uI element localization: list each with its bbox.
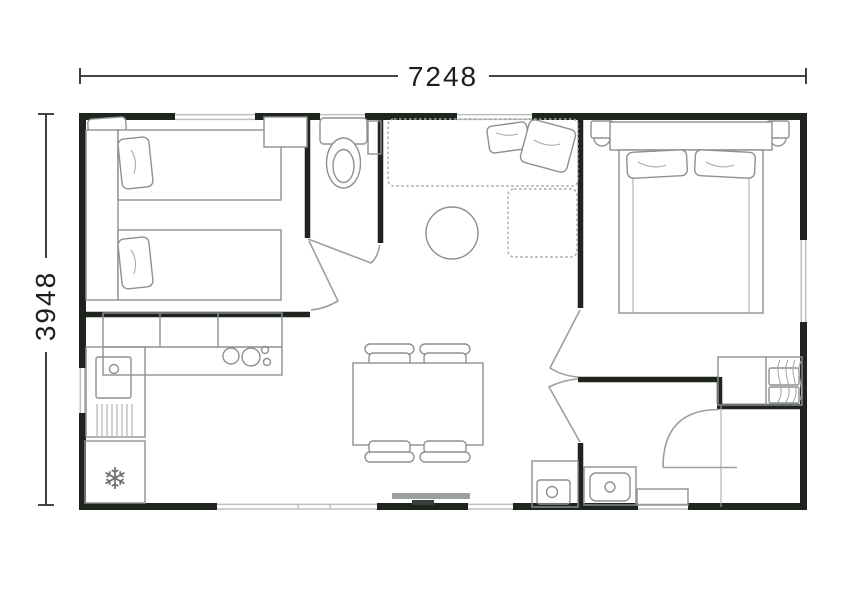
pillow-double-2 (694, 149, 755, 178)
sofa-cushion-2 (519, 119, 577, 174)
sofa-chaise (508, 189, 577, 257)
kitchen: ❄ (85, 313, 282, 503)
window-bedroom2-right (801, 240, 805, 322)
window-bottom-center (468, 504, 513, 509)
floor-plan: 7248 3948 (0, 0, 850, 600)
door-bathroom-inner (663, 410, 737, 468)
headboard (86, 130, 118, 300)
dimension-left: 3948 (30, 114, 61, 505)
window-bedroom1 (175, 115, 255, 120)
window-bottom-left (217, 504, 377, 509)
shower-room (532, 406, 721, 507)
wall-bathroom (578, 377, 806, 407)
drainer (97, 404, 132, 436)
dining-table (353, 363, 483, 445)
hanging-clothes (778, 360, 802, 402)
bedroom-2 (591, 121, 802, 405)
fridge-icon: ❄ (102, 462, 127, 497)
water-heater (532, 461, 578, 507)
wardrobe-bedroom2 (718, 357, 802, 405)
dining-area (353, 344, 483, 462)
living-room (388, 119, 578, 259)
dimension-width-label: 7248 (408, 61, 478, 92)
washbasin (584, 467, 636, 505)
hob (223, 347, 271, 367)
sliding-door-panel (392, 493, 470, 499)
door-bathroom (549, 379, 580, 442)
pillow-double-1 (626, 149, 687, 178)
window-sill (637, 489, 688, 505)
chair-bottom-1 (365, 441, 414, 462)
wc (320, 118, 381, 188)
kitchen-counter-left (86, 347, 145, 437)
toilet-bowl (327, 138, 361, 188)
door-bedroom2 (550, 310, 580, 377)
pillow-bed1 (117, 136, 153, 189)
headboard-bedroom2 (610, 122, 772, 150)
dimension-height-label: 3948 (30, 271, 61, 341)
chair-top-1 (365, 344, 414, 365)
kitchen-cabinets (103, 313, 282, 347)
fridge: ❄ (85, 441, 145, 503)
coffee-table (426, 207, 478, 259)
pillow-bed2 (117, 236, 153, 289)
chair-bottom-2 (420, 441, 470, 462)
window-kitchen-left (80, 368, 84, 413)
wardrobe-bedroom1 (264, 117, 307, 147)
sliding-door-track (412, 500, 434, 505)
sink (96, 357, 131, 398)
dimension-top: 7248 (80, 61, 806, 92)
door-bedroom1 (309, 241, 338, 310)
bedroom-1 (86, 117, 307, 300)
chair-top-2 (420, 344, 470, 365)
